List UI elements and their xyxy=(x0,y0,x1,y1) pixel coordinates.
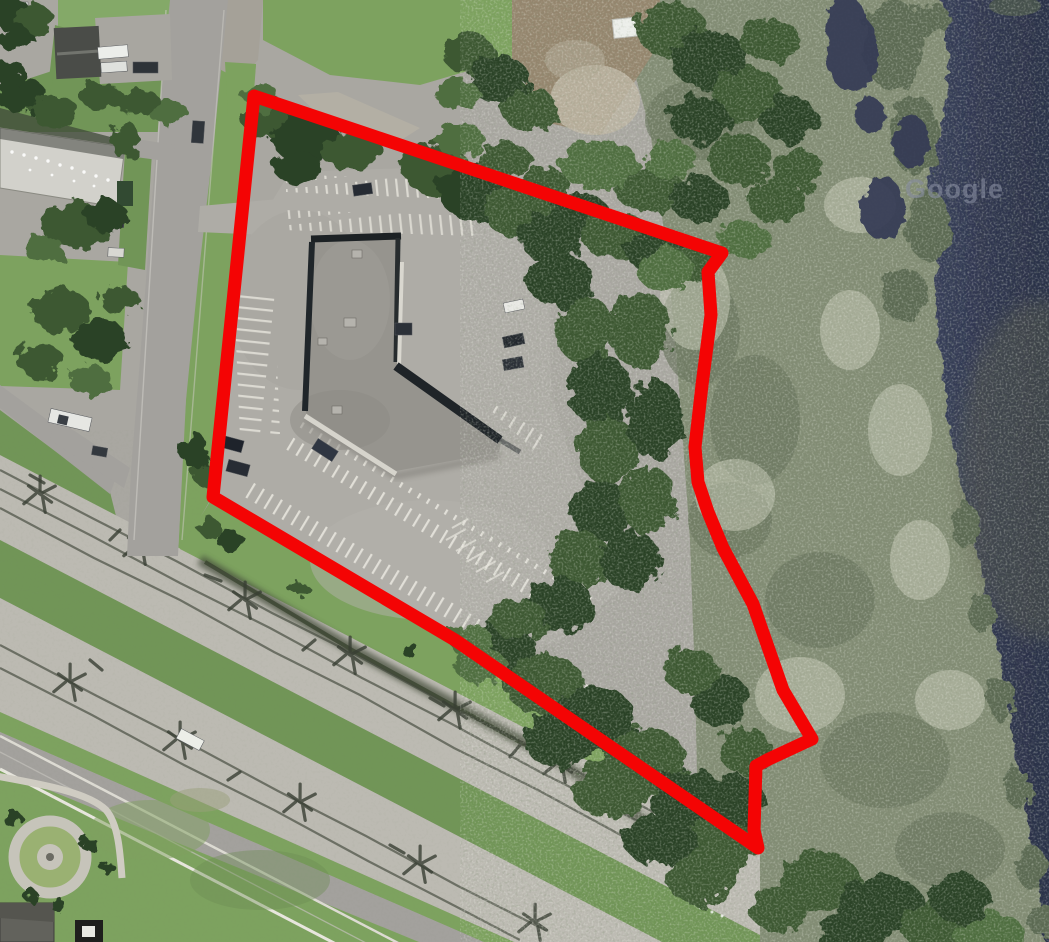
parked-car xyxy=(133,62,158,73)
satellite-map-viewport[interactable]: Google xyxy=(0,0,1049,942)
base-terrain xyxy=(0,0,1049,942)
white-trailer xyxy=(98,45,129,60)
parking-stripes-row xyxy=(234,290,280,438)
green-awning xyxy=(117,181,133,206)
roof-parapet-shadow xyxy=(311,236,401,239)
dumpster xyxy=(395,323,412,335)
google-watermark: Google xyxy=(905,174,1004,204)
aerial-imagery: Google xyxy=(0,0,1049,942)
